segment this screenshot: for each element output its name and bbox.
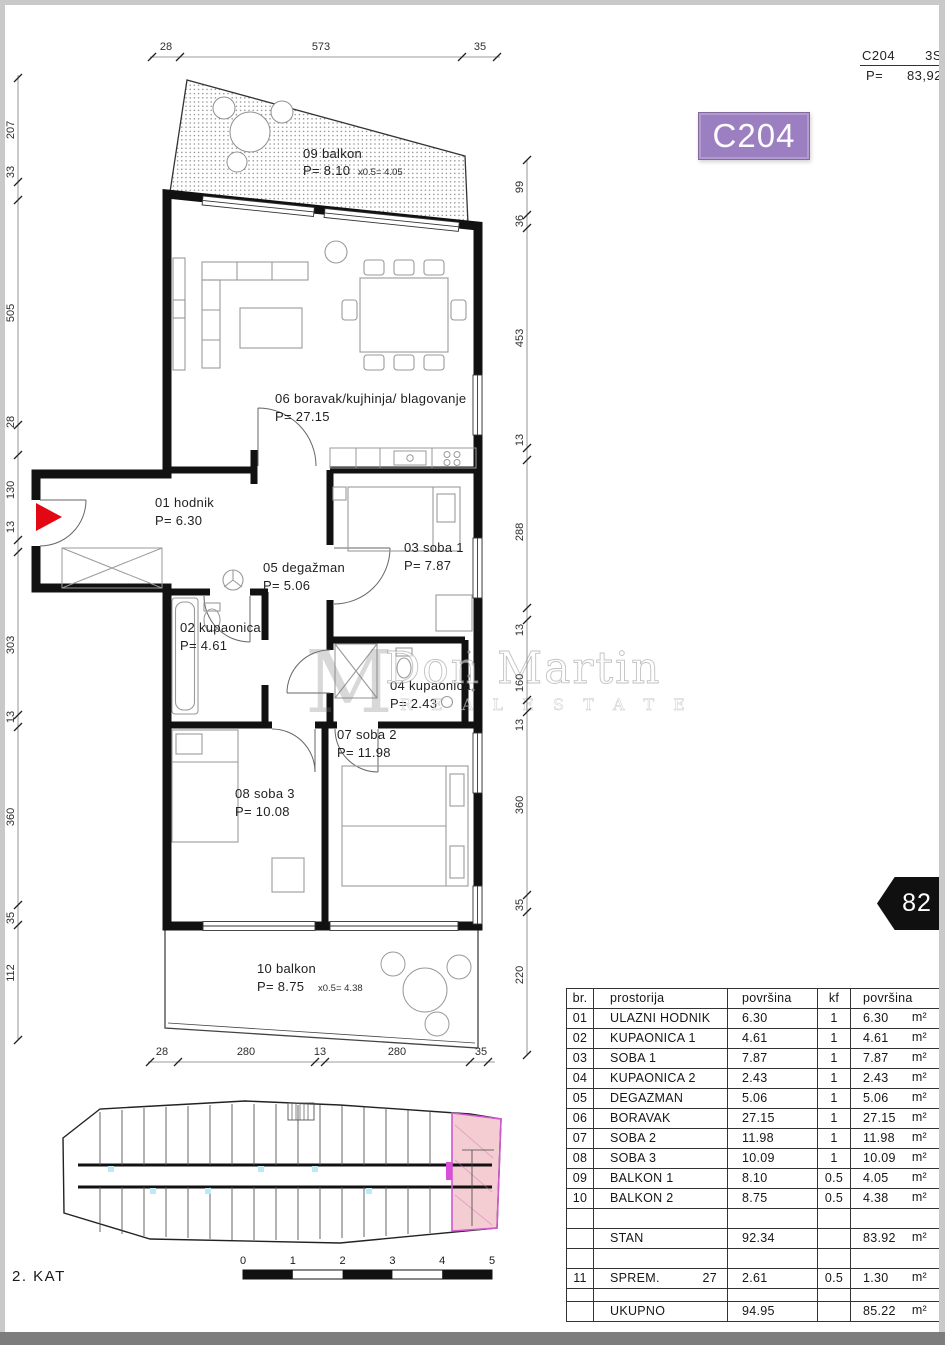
svg-text:13: 13 bbox=[314, 1046, 326, 1058]
unit-badge-label: C204 bbox=[713, 117, 796, 155]
unit-p-label: P= bbox=[866, 68, 883, 83]
svg-text:13: 13 bbox=[514, 719, 526, 731]
col-header-povrsina2: površina bbox=[863, 989, 913, 1008]
svg-text:303: 303 bbox=[5, 636, 17, 654]
room-area-07: P= 11.98 bbox=[337, 745, 391, 760]
svg-text:220: 220 bbox=[514, 966, 526, 984]
col-header-br: br. bbox=[567, 989, 594, 1008]
svg-text:13: 13 bbox=[5, 711, 17, 723]
svg-text:3: 3 bbox=[389, 1255, 395, 1267]
furniture-living bbox=[173, 241, 466, 370]
page-border-right bbox=[939, 0, 945, 1345]
svg-text:573: 573 bbox=[312, 41, 330, 53]
table-row-ukupno: UKUPNO 94.95 85.22m² bbox=[567, 1302, 943, 1322]
room-label-03: 03 soba 1 bbox=[404, 540, 464, 555]
table-spacer-row bbox=[567, 1289, 943, 1302]
svg-text:36: 36 bbox=[514, 215, 526, 227]
room-area-02: P= 4.61 bbox=[180, 638, 227, 653]
room-area-10: P= 8.75 bbox=[257, 979, 304, 994]
entrance-arrow bbox=[36, 503, 62, 531]
unit-header-area-row: P= 83,92 bbox=[860, 66, 944, 83]
room-label-10: 10 balkon bbox=[257, 961, 316, 976]
svg-text:28: 28 bbox=[156, 1046, 168, 1058]
svg-text:28: 28 bbox=[160, 41, 172, 53]
unit-p-value: 83,92 bbox=[907, 68, 942, 83]
svg-text:13: 13 bbox=[5, 521, 17, 533]
table-row: 03 SOBA 1 7.87 1 7.87m² bbox=[567, 1049, 943, 1069]
room-labels: 06 boravak/kujhinja/ blagovanje P= 27.15… bbox=[155, 391, 471, 819]
room-area-06: P= 27.15 bbox=[275, 409, 330, 424]
svg-text:13: 13 bbox=[514, 624, 526, 636]
col-header-kf: kf bbox=[818, 989, 851, 1008]
room-label-09: 09 balkon bbox=[303, 146, 362, 161]
svg-text:112: 112 bbox=[5, 964, 17, 982]
svg-text:360: 360 bbox=[5, 808, 17, 826]
scale-bar: 0 1 2 3 4 5 bbox=[240, 1255, 495, 1279]
page-border-left bbox=[0, 0, 5, 1345]
svg-text:35: 35 bbox=[514, 899, 526, 911]
room-factor-10: x0.5= 4.38 bbox=[318, 983, 363, 994]
svg-text:280: 280 bbox=[388, 1046, 406, 1058]
table-header: br. prostorija površina kf površina bbox=[567, 989, 943, 1009]
unit-badge: C204 bbox=[698, 112, 810, 160]
svg-text:99: 99 bbox=[514, 181, 526, 193]
room-label-05: 05 degažman bbox=[263, 560, 345, 575]
table-row: 07 SOBA 2 11.98 1 11.98m² bbox=[567, 1129, 943, 1149]
page: 09 balkon P= 8.10 x0.5= 4.05 10 balkon P… bbox=[0, 0, 945, 1345]
hallway-wardrobe bbox=[62, 548, 162, 588]
table-spacer-row bbox=[567, 1209, 943, 1229]
table-row: 04 KUPAONICA 2 2.43 1 2.43m² bbox=[567, 1069, 943, 1089]
room-area-03: P= 7.87 bbox=[404, 558, 451, 573]
room-label-06: 06 boravak/kujhinja/ blagovanje bbox=[275, 391, 466, 406]
table-row: 08 SOBA 3 10.09 1 10.09m² bbox=[567, 1149, 943, 1169]
svg-text:280: 280 bbox=[237, 1046, 255, 1058]
svg-text:288: 288 bbox=[514, 523, 526, 541]
svg-text:360: 360 bbox=[514, 796, 526, 814]
svg-text:4: 4 bbox=[439, 1255, 445, 1267]
room-area-01: P= 6.30 bbox=[155, 513, 202, 528]
svg-text:160: 160 bbox=[514, 674, 526, 692]
room-area-05: P= 5.06 bbox=[263, 578, 310, 593]
svg-text:5: 5 bbox=[489, 1255, 495, 1267]
svg-text:13: 13 bbox=[514, 434, 526, 446]
bedroom-2-furniture bbox=[342, 766, 468, 886]
svg-text:505: 505 bbox=[5, 304, 17, 322]
table-spacer-row bbox=[567, 1249, 943, 1269]
table-row: 02 KUPAONICA 1 4.61 1 4.61m² bbox=[567, 1029, 943, 1049]
unit-code: C204 bbox=[862, 48, 895, 63]
dim-left: 207 33 505 28 130 13 303 13 360 35 112 bbox=[5, 74, 22, 1044]
col-header-povrsina: površina bbox=[728, 989, 818, 1008]
unit-header-code-row: C204 3S bbox=[860, 48, 944, 66]
room-area-08: P= 10.08 bbox=[235, 804, 290, 819]
table-row: 06 BORAVAK 27.15 1 27.15m² bbox=[567, 1109, 943, 1129]
dim-top: 28 573 35 bbox=[148, 41, 501, 61]
svg-text:2: 2 bbox=[340, 1255, 346, 1267]
col-header-prostorija: prostorija bbox=[594, 989, 728, 1008]
key-plan bbox=[63, 1101, 501, 1243]
svg-text:207: 207 bbox=[5, 121, 17, 139]
svg-text:35: 35 bbox=[474, 41, 486, 53]
room-label-01: 01 hodnik bbox=[155, 495, 214, 510]
svg-text:33: 33 bbox=[5, 166, 17, 178]
dim-right: 99 36 453 13 288 13 160 13 360 35 220 bbox=[514, 156, 531, 1059]
watermark: M Don Martin R E A L E S T A T E bbox=[305, 633, 692, 733]
unit-header: C204 3S P= 83,92 bbox=[860, 48, 944, 83]
svg-text:0: 0 bbox=[240, 1255, 246, 1267]
svg-text:130: 130 bbox=[5, 481, 17, 499]
kitchen bbox=[330, 448, 476, 468]
table-row: 10 BALKON 2 8.75 0.5 4.38m² bbox=[567, 1189, 943, 1209]
svg-text:35: 35 bbox=[5, 912, 17, 924]
svg-text:453: 453 bbox=[514, 329, 526, 347]
room-label-02: 02 kupaonica bbox=[180, 620, 261, 635]
watermark-monogram: M bbox=[305, 633, 393, 733]
page-border-bottom bbox=[0, 1332, 945, 1345]
page-border-top bbox=[0, 0, 945, 5]
svg-text:1: 1 bbox=[290, 1255, 296, 1267]
room-label-08: 08 soba 3 bbox=[235, 786, 295, 801]
floor-label: 2. KAT bbox=[12, 1268, 66, 1285]
table-row-stan: STAN 92.34 83.92m² bbox=[567, 1229, 943, 1249]
table-row-sprem: 11 SPREM.27 2.61 0.5 1.30m² bbox=[567, 1269, 943, 1289]
balcony-bottom: 10 balkon P= 8.75 x0.5= 4.38 bbox=[165, 926, 478, 1048]
svg-text:28: 28 bbox=[5, 416, 17, 428]
room-factor-09: x0.5= 4.05 bbox=[358, 167, 403, 178]
table-row: 09 BALKON 1 8.10 0.5 4.05m² bbox=[567, 1169, 943, 1189]
room-area-09: P= 8.10 bbox=[303, 163, 350, 178]
dim-bottom: 28 280 13 280 35 bbox=[146, 1046, 495, 1066]
area-table: br. prostorija površina kf površina 01 U… bbox=[566, 988, 943, 1322]
table-row: 01 ULAZNI HODNIK 6.30 1 6.30m² bbox=[567, 1009, 943, 1029]
table-row: 05 DEGAZMAN 5.06 1 5.06m² bbox=[567, 1089, 943, 1109]
svg-text:35: 35 bbox=[475, 1046, 487, 1058]
watermark-subtitle: R E A L E S T A T E bbox=[400, 695, 692, 714]
page-number: 82 bbox=[902, 889, 932, 918]
